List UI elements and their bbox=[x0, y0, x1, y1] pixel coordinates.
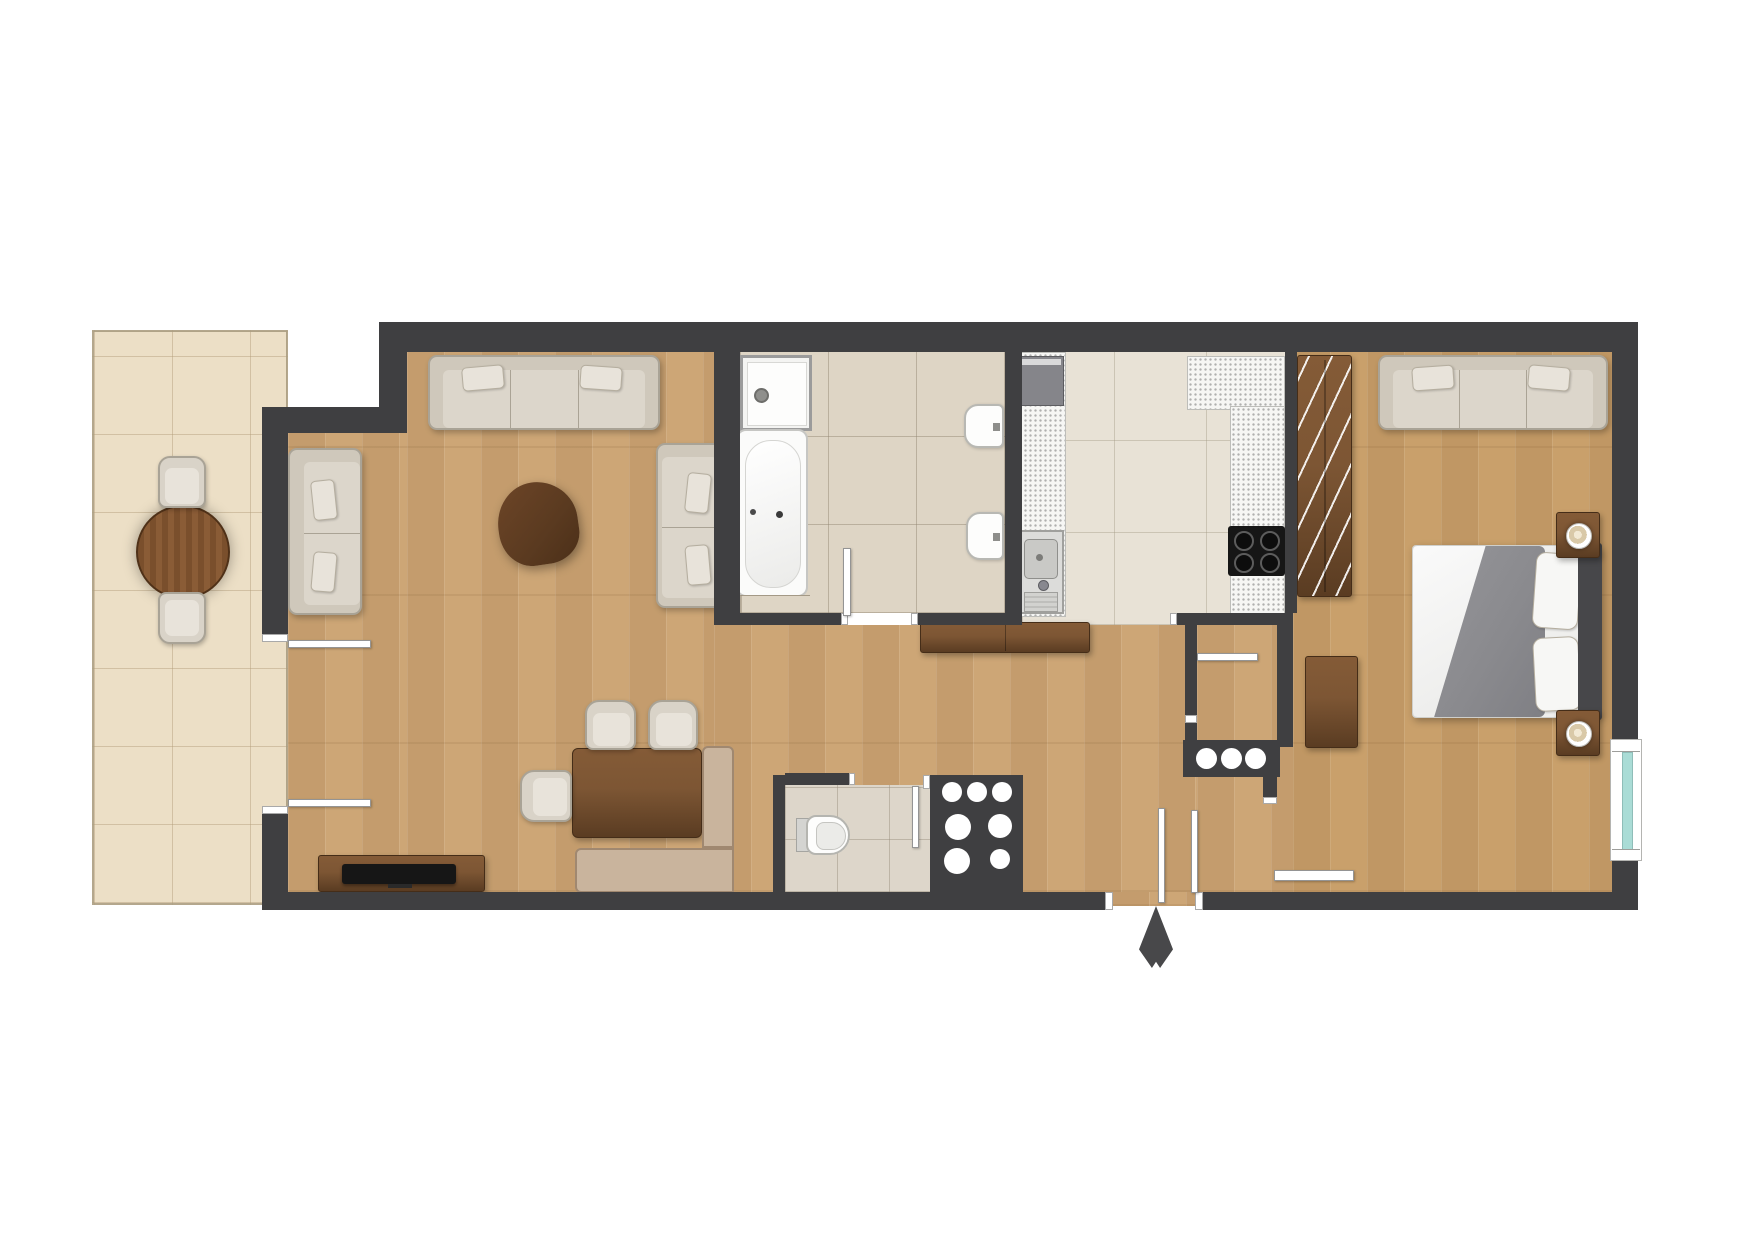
toilet-bowl bbox=[806, 815, 850, 855]
burner-icon bbox=[1234, 553, 1254, 573]
wall-wc-top bbox=[785, 773, 855, 785]
bathtub-faucet-icon bbox=[776, 511, 783, 518]
three-seat-sofa bbox=[428, 355, 660, 430]
sink-faucet-icon bbox=[1038, 580, 1049, 591]
wall-wc-left bbox=[773, 775, 785, 893]
wall-closet-right bbox=[1277, 613, 1293, 747]
wall-bathroom-kitchen-divider bbox=[1005, 352, 1022, 625]
wall-bedroom-doorway-stub bbox=[1263, 777, 1277, 797]
wall-cap bbox=[262, 806, 288, 814]
tv bbox=[342, 864, 456, 884]
tv-stand-foot bbox=[388, 884, 412, 888]
sofa-cushion-divider bbox=[1459, 370, 1460, 428]
entrance-door-leaf bbox=[1191, 810, 1198, 893]
bidet-faucet-icon bbox=[993, 533, 1000, 541]
wall-top bbox=[379, 322, 1638, 352]
threshold bbox=[1170, 613, 1177, 625]
wardrobe bbox=[1297, 355, 1352, 597]
sink-drain-icon bbox=[1036, 554, 1043, 561]
closet-door bbox=[1197, 653, 1258, 661]
sofa-cushion-divider bbox=[510, 370, 511, 428]
sideboard bbox=[920, 622, 1090, 653]
threshold bbox=[1185, 715, 1197, 723]
chair-cushion bbox=[165, 468, 199, 504]
chair-cushion bbox=[656, 713, 692, 746]
sink-drainboard bbox=[1024, 592, 1058, 612]
utility-circle-icon bbox=[992, 782, 1012, 802]
nightstand bbox=[1556, 512, 1600, 558]
bedroom-window bbox=[1610, 739, 1642, 861]
chair-cushion bbox=[165, 600, 199, 636]
wall-terrace-lower bbox=[262, 806, 288, 892]
sofa-cushion-divider bbox=[304, 533, 360, 534]
bidet bbox=[966, 512, 1004, 560]
toilet-seat bbox=[816, 822, 846, 850]
wall-cap bbox=[262, 634, 288, 642]
sofa-pillow bbox=[310, 479, 338, 521]
corner-bench bbox=[575, 848, 734, 893]
dining-chair bbox=[585, 700, 636, 750]
burner-icon bbox=[1260, 531, 1280, 551]
utility-circle-icon bbox=[990, 849, 1010, 869]
bathtub bbox=[736, 429, 808, 597]
utility-circle-icon bbox=[944, 848, 970, 874]
toilet bbox=[796, 815, 852, 855]
window-frame-line bbox=[1612, 751, 1640, 752]
window-glass bbox=[1622, 752, 1633, 850]
wall-bathroom-left bbox=[714, 352, 740, 625]
utility-block bbox=[930, 775, 1023, 893]
washbasin-faucet-icon bbox=[993, 423, 1000, 431]
bedroom-sofa bbox=[1378, 355, 1608, 430]
entrance-door-panel bbox=[1158, 808, 1165, 903]
double-bed bbox=[1412, 545, 1602, 718]
bedroom-sliding-door bbox=[1274, 870, 1354, 881]
terrace-sliding-door-upper bbox=[288, 640, 371, 648]
two-seat-sofa-left bbox=[288, 448, 362, 615]
floor-plan bbox=[0, 0, 1754, 1240]
sofa-pillow bbox=[684, 544, 711, 586]
sofa-pillow bbox=[1411, 365, 1455, 392]
table-lamp-icon bbox=[1566, 523, 1592, 549]
kitchen-sink bbox=[1016, 530, 1064, 614]
window-frame-line bbox=[1612, 849, 1640, 850]
sofa-pillow bbox=[1527, 364, 1571, 392]
kitchen-counter-right bbox=[1230, 406, 1285, 617]
threshold bbox=[923, 775, 930, 789]
washbasin bbox=[964, 404, 1004, 448]
wall-step bbox=[262, 407, 407, 433]
band-circle-icon bbox=[1221, 748, 1242, 769]
terrace-round-table bbox=[136, 505, 230, 599]
threshold bbox=[849, 773, 855, 785]
bathtub-drain-icon bbox=[750, 509, 756, 515]
sofa-pillow bbox=[579, 365, 623, 392]
sofa-pillow bbox=[684, 472, 712, 514]
threshold bbox=[1195, 892, 1203, 910]
burner-icon bbox=[1260, 553, 1280, 573]
wardrobe-rail bbox=[1324, 360, 1326, 592]
bed-pillow bbox=[1531, 551, 1582, 630]
table-lamp-icon bbox=[1566, 721, 1592, 747]
sofa-pillow bbox=[461, 364, 505, 392]
bathtub-ledge bbox=[740, 595, 810, 613]
band-circle-icon bbox=[1245, 748, 1266, 769]
wall-bathroom-bottom-left bbox=[740, 613, 848, 625]
shower-drain-icon bbox=[754, 388, 769, 403]
utility-circle-icon bbox=[988, 814, 1012, 838]
wall-closet-bottom-band bbox=[1183, 740, 1280, 777]
threshold bbox=[1105, 892, 1113, 910]
utility-circle-icon bbox=[942, 782, 962, 802]
dining-chair bbox=[520, 770, 572, 822]
dining-chair bbox=[648, 700, 698, 750]
cooktop bbox=[1228, 526, 1285, 576]
terrace-sliding-door-lower bbox=[288, 799, 371, 807]
wc-door bbox=[912, 786, 919, 848]
terrace-chair bbox=[158, 592, 206, 644]
threshold bbox=[1263, 797, 1277, 804]
shower-tray bbox=[740, 355, 812, 431]
entrance-threshold-floor bbox=[1112, 892, 1200, 906]
threshold bbox=[911, 613, 918, 625]
burner-icon bbox=[1234, 531, 1254, 551]
sofa-pillow bbox=[310, 551, 337, 593]
entrance-arrow-icon bbox=[1139, 906, 1173, 968]
wall-bathroom-bottom-right bbox=[918, 613, 1005, 625]
wall-bottom-right bbox=[1200, 892, 1638, 910]
band-circle-icon bbox=[1196, 748, 1217, 769]
bathroom-door bbox=[843, 548, 851, 616]
terrace-chair bbox=[158, 456, 206, 508]
wall-kitchen-bedroom-divider bbox=[1285, 352, 1297, 613]
chair-cushion bbox=[533, 778, 567, 816]
utility-circle-icon bbox=[945, 814, 971, 840]
fridge-top-line bbox=[1017, 359, 1061, 365]
bed-pillow bbox=[1532, 636, 1582, 712]
sofa-cushion-divider bbox=[662, 527, 718, 528]
wall-terrace-upper bbox=[262, 433, 288, 641]
bed-headboard bbox=[1578, 543, 1602, 720]
sideboard-divider bbox=[1005, 625, 1006, 651]
dining-table bbox=[572, 748, 702, 838]
bedroom-desk bbox=[1305, 656, 1358, 748]
wall-closet-left bbox=[1185, 620, 1197, 747]
utility-circle-icon bbox=[967, 782, 987, 802]
wall-bottom-left bbox=[262, 892, 1105, 910]
corner-bench bbox=[702, 746, 734, 848]
chair-cushion bbox=[593, 713, 630, 746]
nightstand bbox=[1556, 710, 1600, 756]
kitchen-counter-top bbox=[1187, 356, 1285, 410]
